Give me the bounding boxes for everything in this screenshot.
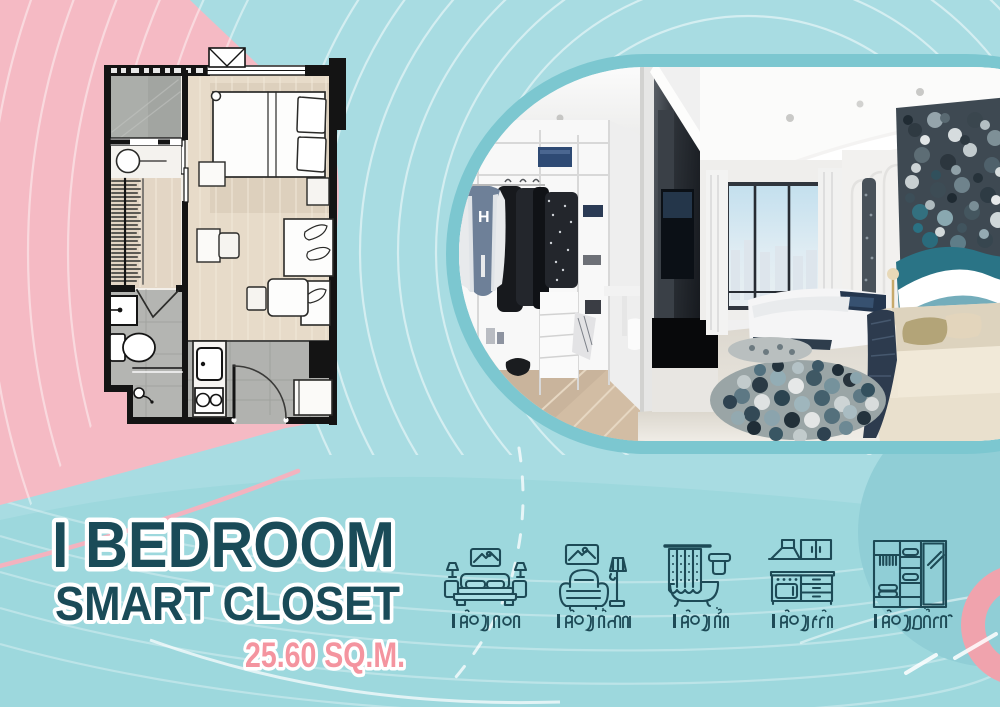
- svg-text:H: H: [478, 209, 490, 226]
- svg-text:SMART CLOSET: SMART CLOSET: [55, 578, 400, 631]
- svg-text:I BEDROOM: I BEDROOM: [52, 508, 395, 581]
- svg-text:25.60 SQ.M.: 25.60 SQ.M.: [245, 636, 405, 675]
